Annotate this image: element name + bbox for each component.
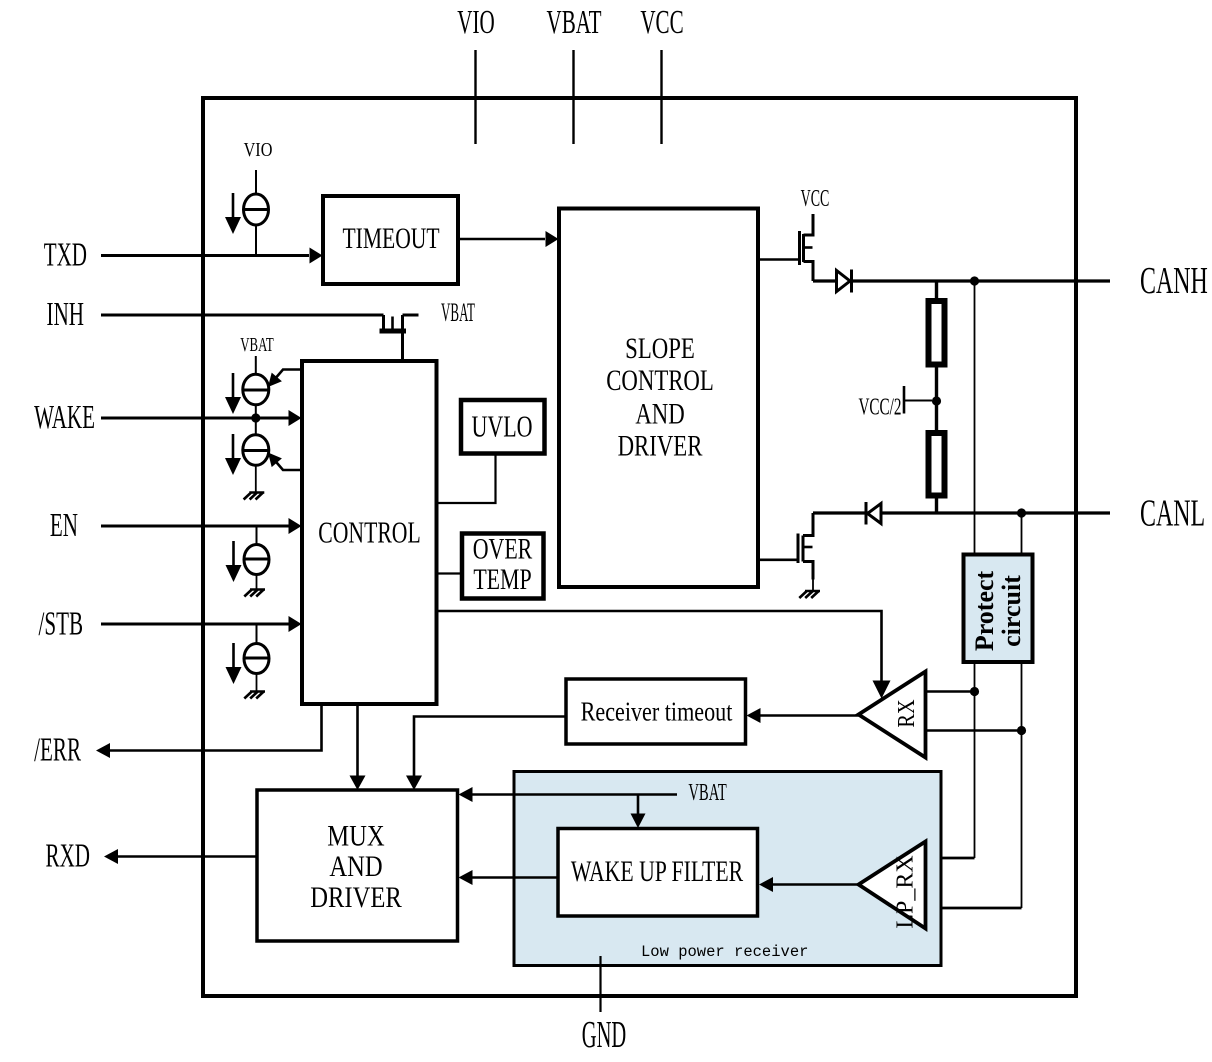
svg-text:Protectcircuit: Protectcircuit [970,570,1026,651]
svg-text:Receiver timeout: Receiver timeout [581,698,733,728]
svg-text:/ERR: /ERR [34,732,81,769]
svg-text:GND: GND [582,1013,626,1055]
svg-text:VIO: VIO [457,4,494,41]
svg-text:RXD: RXD [46,838,90,875]
svg-text:UVLO: UVLO [471,409,532,444]
svg-text:TIMEOUT: TIMEOUT [342,222,439,255]
svg-text:CONTROL: CONTROL [606,363,714,397]
svg-text:VIO: VIO [244,138,273,160]
svg-text:CONTROL: CONTROL [318,515,420,550]
svg-text:VBAT: VBAT [240,333,273,356]
svg-text:TXD: TXD [44,237,87,274]
svg-text:EN: EN [50,507,78,544]
svg-text:VBAT: VBAT [441,299,475,327]
svg-text:SLOPE: SLOPE [625,331,695,365]
svg-text:VBAT: VBAT [546,4,601,41]
svg-text:OVER: OVER [473,532,533,565]
svg-text:/STB: /STB [39,606,83,643]
svg-text:VBAT: VBAT [688,779,726,806]
svg-text:VCC: VCC [640,4,683,41]
svg-text:TEMP: TEMP [473,563,531,596]
svg-text:VCC/2: VCC/2 [858,394,901,420]
svg-text:DRIVER: DRIVER [618,428,703,462]
svg-text:VCC: VCC [801,185,830,212]
svg-text:DRIVER: DRIVER [310,881,402,914]
svg-text:AND: AND [635,396,684,430]
svg-text:CANH: CANH [1140,259,1208,301]
svg-text:AND: AND [329,850,382,883]
svg-text:CANL: CANL [1140,492,1205,534]
svg-text:WAKE UP FILTER: WAKE UP FILTER [571,855,744,888]
svg-text:MUX: MUX [327,819,385,852]
svg-text:WAKE: WAKE [34,399,95,436]
svg-text:INH: INH [47,296,84,333]
svg-text:Low power receiver: Low power receiver [641,943,808,961]
svg-text:RX: RX [892,699,919,727]
svg-text:LP_RX: LP_RX [893,855,919,928]
